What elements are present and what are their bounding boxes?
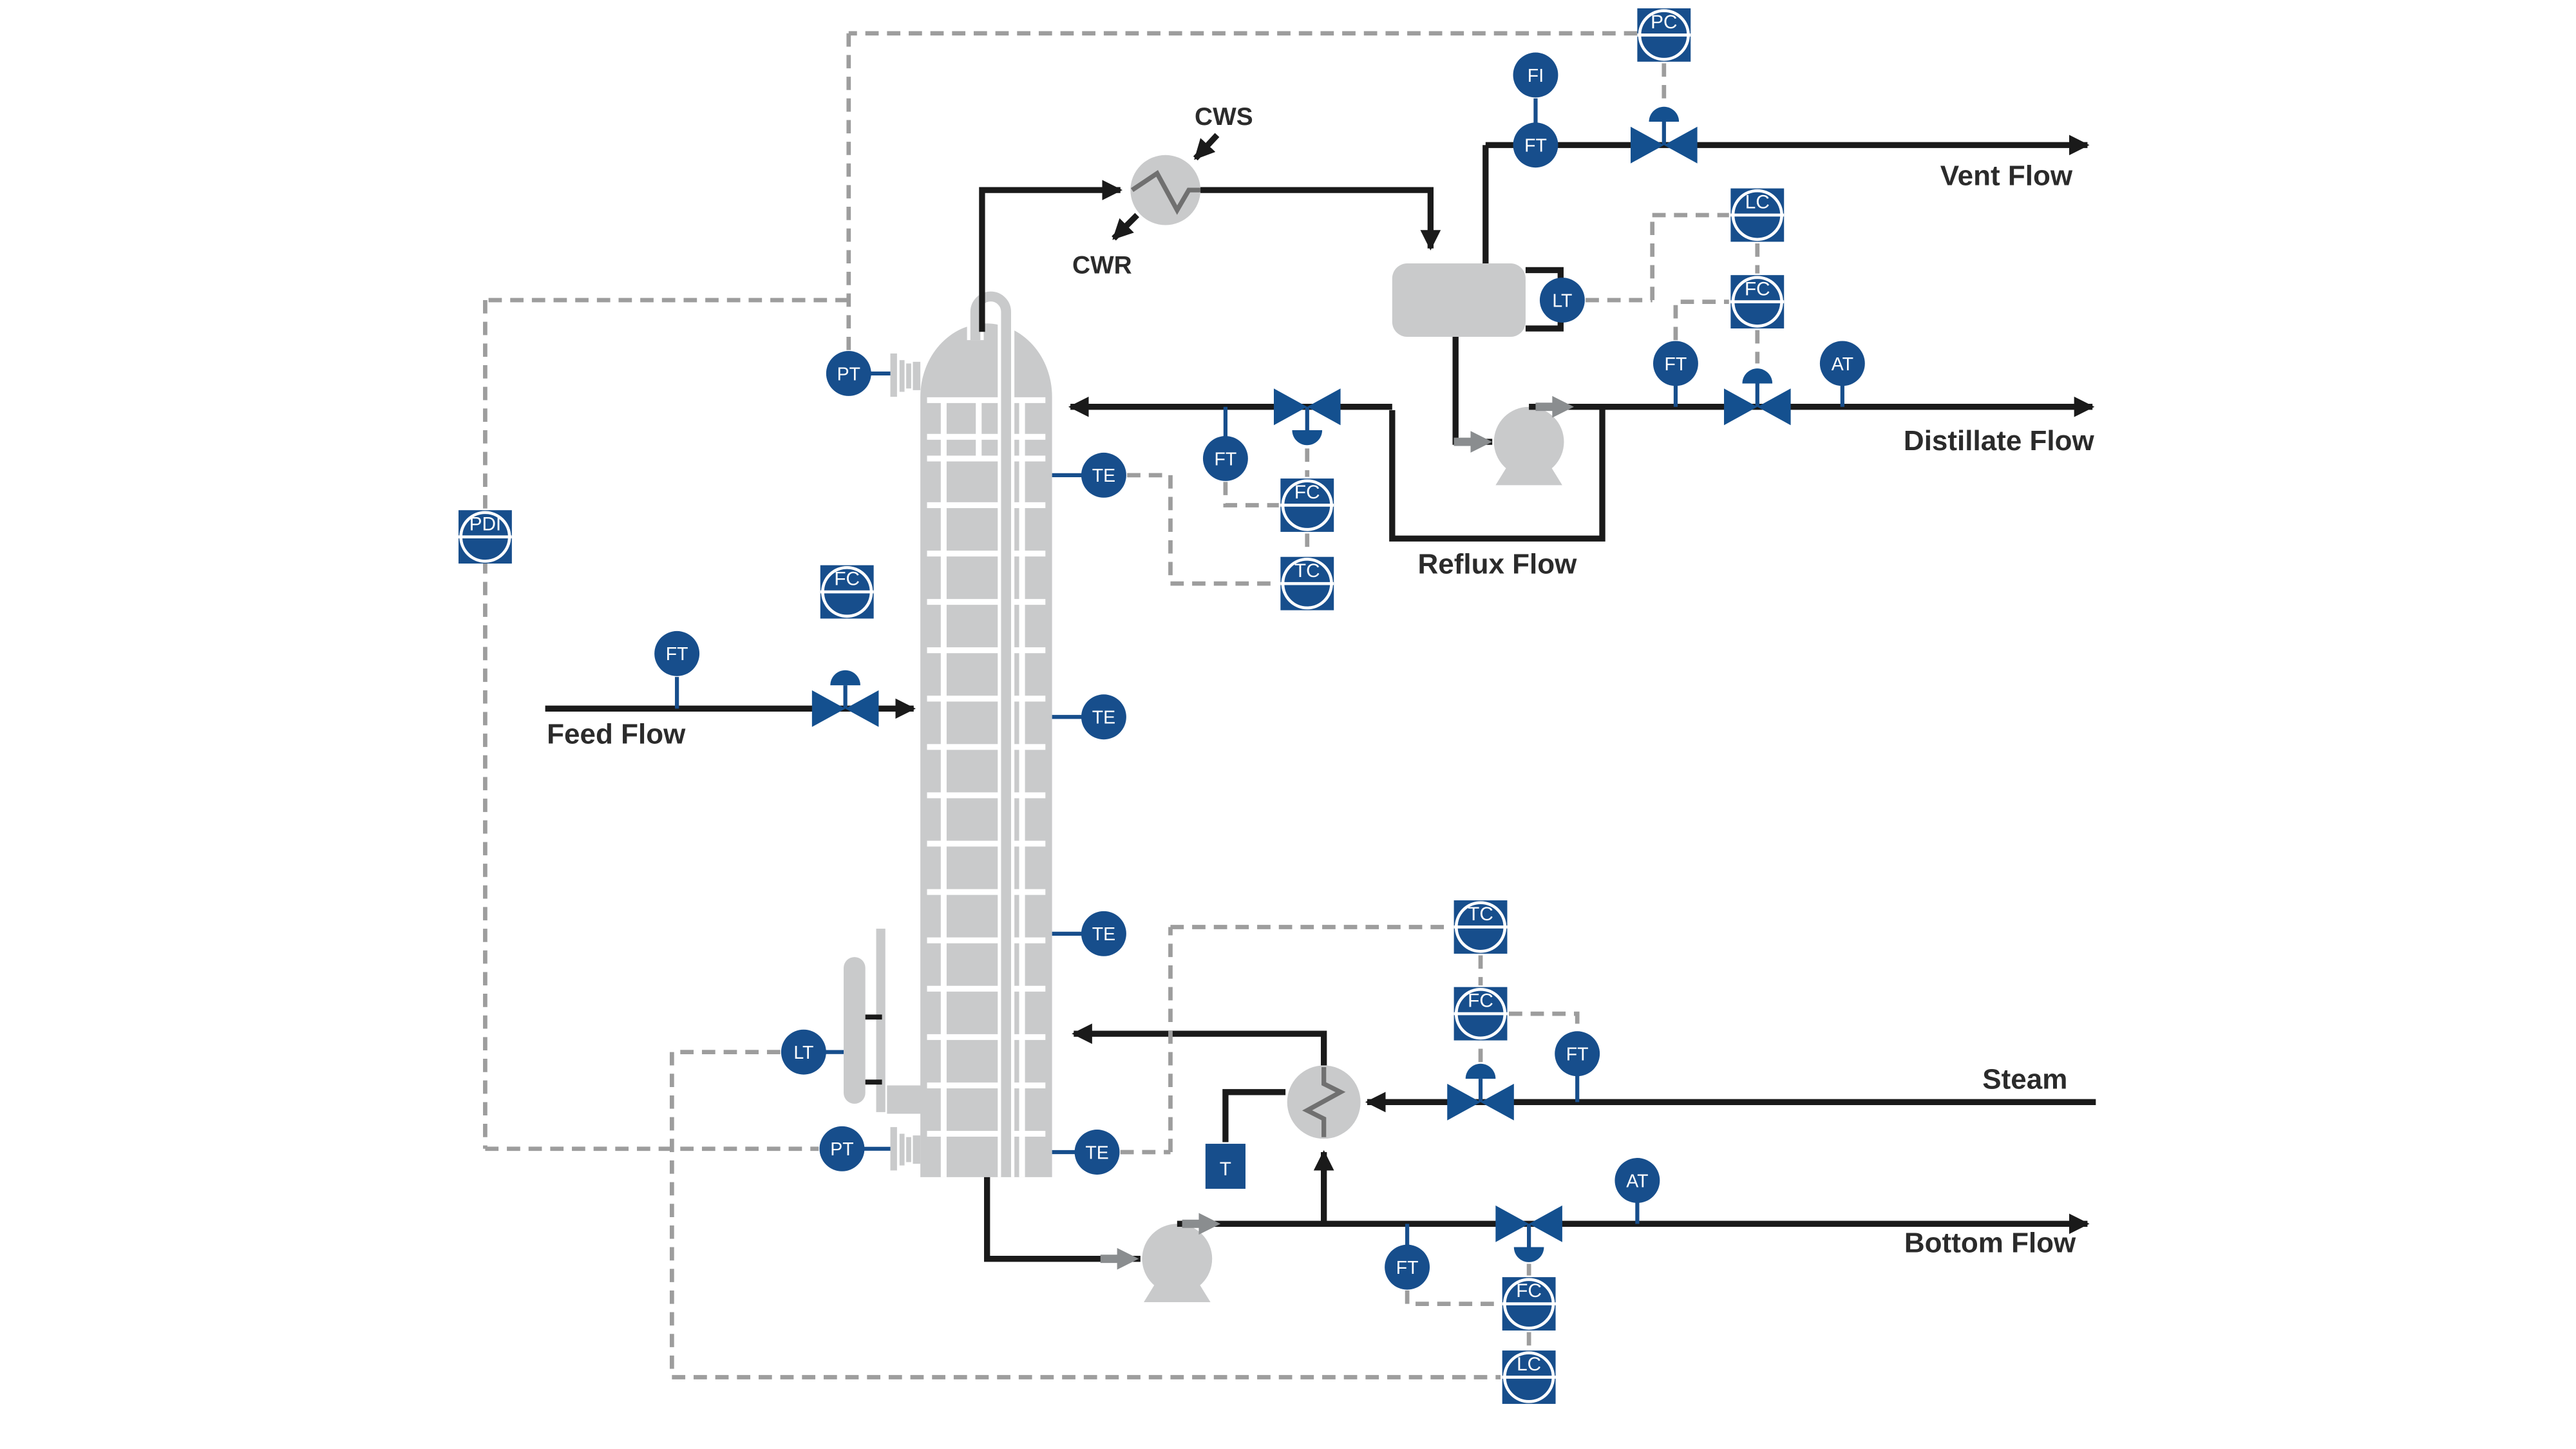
- distillation-column[interactable]: [920, 296, 1052, 1177]
- instrument-pt-top[interactable]: PT: [826, 351, 871, 396]
- level-bridle: [844, 929, 922, 1113]
- svg-text:PT: PT: [830, 1139, 853, 1160]
- pt-top-nozzle: [891, 354, 921, 397]
- actuator-dome: [1514, 1247, 1544, 1262]
- flow-arrow-drum-outlet: [1454, 431, 1493, 453]
- bottom-control-valve[interactable]: [1495, 1206, 1562, 1262]
- svg-text:FT: FT: [1524, 136, 1547, 156]
- svg-text:FT: FT: [1665, 354, 1687, 375]
- steam-label: Steam: [1982, 1064, 2067, 1095]
- instrument-fc-feed[interactable]: FC: [820, 565, 874, 619]
- instrument-t-reboiler[interactable]: T: [1206, 1144, 1245, 1189]
- instrument-te-3[interactable]: TE: [1081, 911, 1126, 956]
- instrument-ft-distillate[interactable]: FT: [1653, 341, 1698, 386]
- instrument-fc-bottom[interactable]: FC: [1502, 1277, 1556, 1331]
- instrument-te-4[interactable]: TE: [1075, 1130, 1120, 1175]
- reflux-control-valve[interactable]: [1274, 388, 1341, 445]
- instrument-tc-reflux[interactable]: TC: [1280, 557, 1334, 611]
- drum-outlet-line: [1455, 337, 1492, 442]
- instrument-fc-reflux[interactable]: FC: [1280, 478, 1334, 532]
- instrument-te-1[interactable]: TE: [1081, 453, 1126, 498]
- svg-text:LT: LT: [1552, 290, 1572, 311]
- vent-flow-label: Vent Flow: [1940, 160, 2073, 191]
- instrument-ft-feed[interactable]: FT: [654, 631, 699, 676]
- distillate-flow-label: Distillate Flow: [1904, 425, 2095, 457]
- svg-text:FC: FC: [1468, 990, 1493, 1012]
- instrument-at-distillate[interactable]: AT: [1820, 341, 1865, 386]
- svg-text:FT: FT: [666, 644, 688, 665]
- svg-text:PT: PT: [837, 364, 860, 384]
- condenser-outlet-line: [1200, 190, 1430, 249]
- actuator-dome: [1466, 1064, 1496, 1079]
- equipment: [844, 155, 1564, 1302]
- svg-text:TE: TE: [1092, 708, 1115, 728]
- actuator-dome: [1649, 107, 1680, 122]
- instrument-pc-vent[interactable]: PC: [1637, 8, 1690, 62]
- svg-text:FT: FT: [1396, 1258, 1419, 1278]
- instrument-lc-distillate[interactable]: LC: [1730, 189, 1784, 242]
- reboiler-vapor-return: [1074, 1034, 1323, 1065]
- bottom-flow-label: Bottom Flow: [1904, 1227, 2076, 1258]
- svg-text:LT: LT: [793, 1043, 813, 1063]
- cws-arrow-line: [1195, 135, 1217, 158]
- instrument-ft-bottom[interactable]: FT: [1385, 1245, 1430, 1290]
- instrument-ft-vent[interactable]: FT: [1513, 122, 1558, 167]
- actuator-dome: [1292, 430, 1322, 445]
- instrument-fc-steam[interactable]: FC: [1454, 987, 1508, 1041]
- instrument-ft-steam[interactable]: FT: [1555, 1031, 1600, 1076]
- svg-text:TC: TC: [1294, 560, 1320, 582]
- svg-text:FT: FT: [1215, 449, 1237, 469]
- svg-text:AT: AT: [1832, 354, 1853, 375]
- instrument-lc-bottom[interactable]: LC: [1502, 1350, 1556, 1404]
- svg-text:FT: FT: [1566, 1045, 1589, 1065]
- instrument-lt-drum[interactable]: LT: [1540, 278, 1585, 323]
- pt-bottom-nozzle: [891, 1127, 921, 1170]
- instrument-lt-bottom[interactable]: LT: [781, 1030, 826, 1075]
- actuator-dome: [1742, 368, 1772, 383]
- reflux-loop-line: [1392, 407, 1602, 539]
- svg-text:FC: FC: [1294, 482, 1320, 503]
- feed-control-valve[interactable]: [812, 670, 879, 727]
- actuator-dome: [830, 670, 860, 685]
- svg-text:FC: FC: [1516, 1280, 1542, 1302]
- instrument-at-bottom[interactable]: AT: [1615, 1158, 1660, 1203]
- svg-text:TC: TC: [1468, 904, 1493, 925]
- instrument-fi-vent[interactable]: FI: [1513, 53, 1558, 98]
- instrument-tc-steam[interactable]: TC: [1454, 900, 1508, 954]
- cwr-label: CWR: [1072, 252, 1132, 279]
- condenser[interactable]: [1130, 155, 1200, 225]
- instrument-fc-distillate[interactable]: FC: [1730, 275, 1784, 328]
- instrument-pdi[interactable]: PDI: [459, 510, 512, 563]
- svg-text:LC: LC: [1745, 192, 1770, 213]
- svg-text:LC: LC: [1517, 1354, 1541, 1375]
- bottoms-pump[interactable]: [1142, 1224, 1212, 1302]
- reflux-pump[interactable]: [1494, 407, 1564, 486]
- reboiler-condensate-line: [1226, 1092, 1285, 1142]
- column-bottoms-line: [987, 1177, 1141, 1259]
- reboiler[interactable]: [1287, 1065, 1361, 1139]
- svg-text:TE: TE: [1092, 466, 1115, 486]
- svg-text:FC: FC: [1745, 278, 1770, 299]
- svg-text:T: T: [1220, 1159, 1231, 1180]
- svg-text:FC: FC: [834, 569, 860, 590]
- reflux-flow-label: Reflux Flow: [1417, 549, 1577, 580]
- distillate-control-valve[interactable]: [1724, 368, 1791, 425]
- vent-control-valve[interactable]: [1631, 107, 1698, 164]
- svg-text:FI: FI: [1528, 66, 1544, 86]
- pid-diagram: FI FT LT FT AT FT TE TE TE TE PT FT LT P…: [0, 0, 2576, 1449]
- steam-control-valve[interactable]: [1447, 1064, 1514, 1121]
- feed-flow-label: Feed Flow: [547, 719, 686, 750]
- cws-label: CWS: [1195, 103, 1253, 131]
- svg-text:PDI: PDI: [469, 513, 502, 535]
- svg-text:PC: PC: [1651, 12, 1677, 33]
- reflux-drum[interactable]: [1392, 263, 1526, 337]
- pid-diagram-page: FI FT LT FT AT FT TE TE TE TE PT FT LT P…: [0, 0, 2576, 1449]
- flow-arrow-bottoms-suction: [1101, 1248, 1139, 1270]
- svg-text:AT: AT: [1626, 1171, 1648, 1191]
- instrument-ft-reflux[interactable]: FT: [1203, 436, 1248, 481]
- svg-text:TE: TE: [1085, 1142, 1108, 1163]
- instrument-te-2[interactable]: TE: [1081, 694, 1126, 739]
- cwr-arrow-line: [1113, 215, 1137, 238]
- instrument-pt-bottom[interactable]: PT: [819, 1126, 864, 1171]
- svg-text:TE: TE: [1092, 924, 1115, 945]
